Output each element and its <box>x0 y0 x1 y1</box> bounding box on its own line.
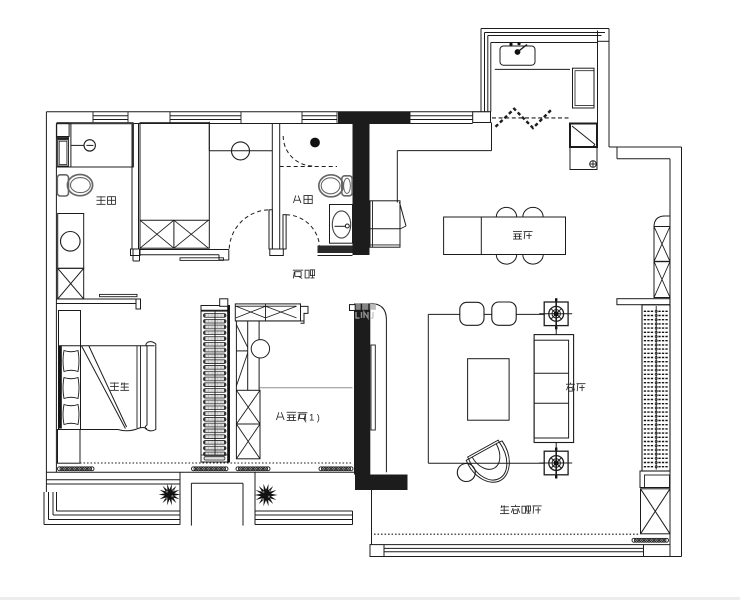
svg-text:( 1 ): ( 1 ) <box>304 412 320 422</box>
